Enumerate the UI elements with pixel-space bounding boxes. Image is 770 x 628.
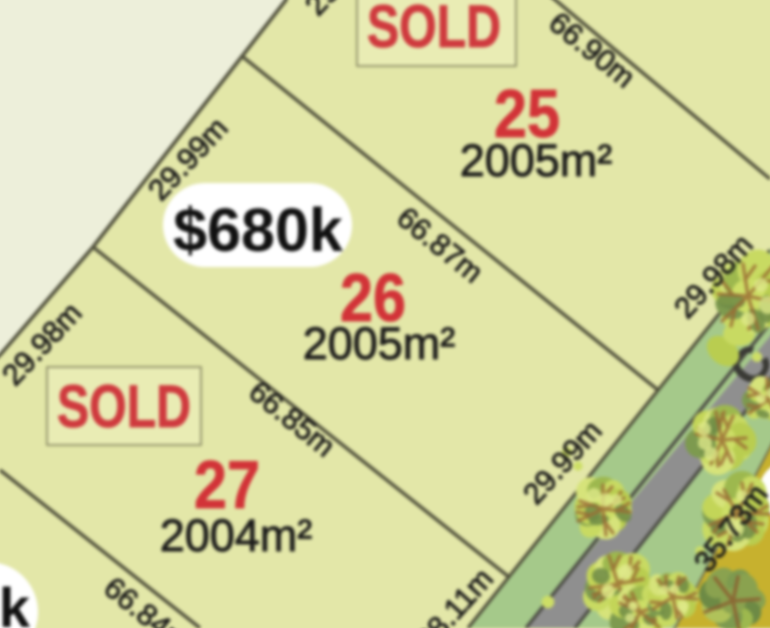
svg-text:$680k: $680k [173,196,343,264]
svg-text:SOLD: SOLD [367,0,501,60]
svg-text:2005m²: 2005m² [460,135,613,186]
svg-text:2004m²: 2004m² [160,510,313,561]
svg-text:SOLD: SOLD [57,373,191,440]
svg-text:2005m²: 2005m² [303,318,456,369]
svg-text:0k: 0k [0,576,31,628]
